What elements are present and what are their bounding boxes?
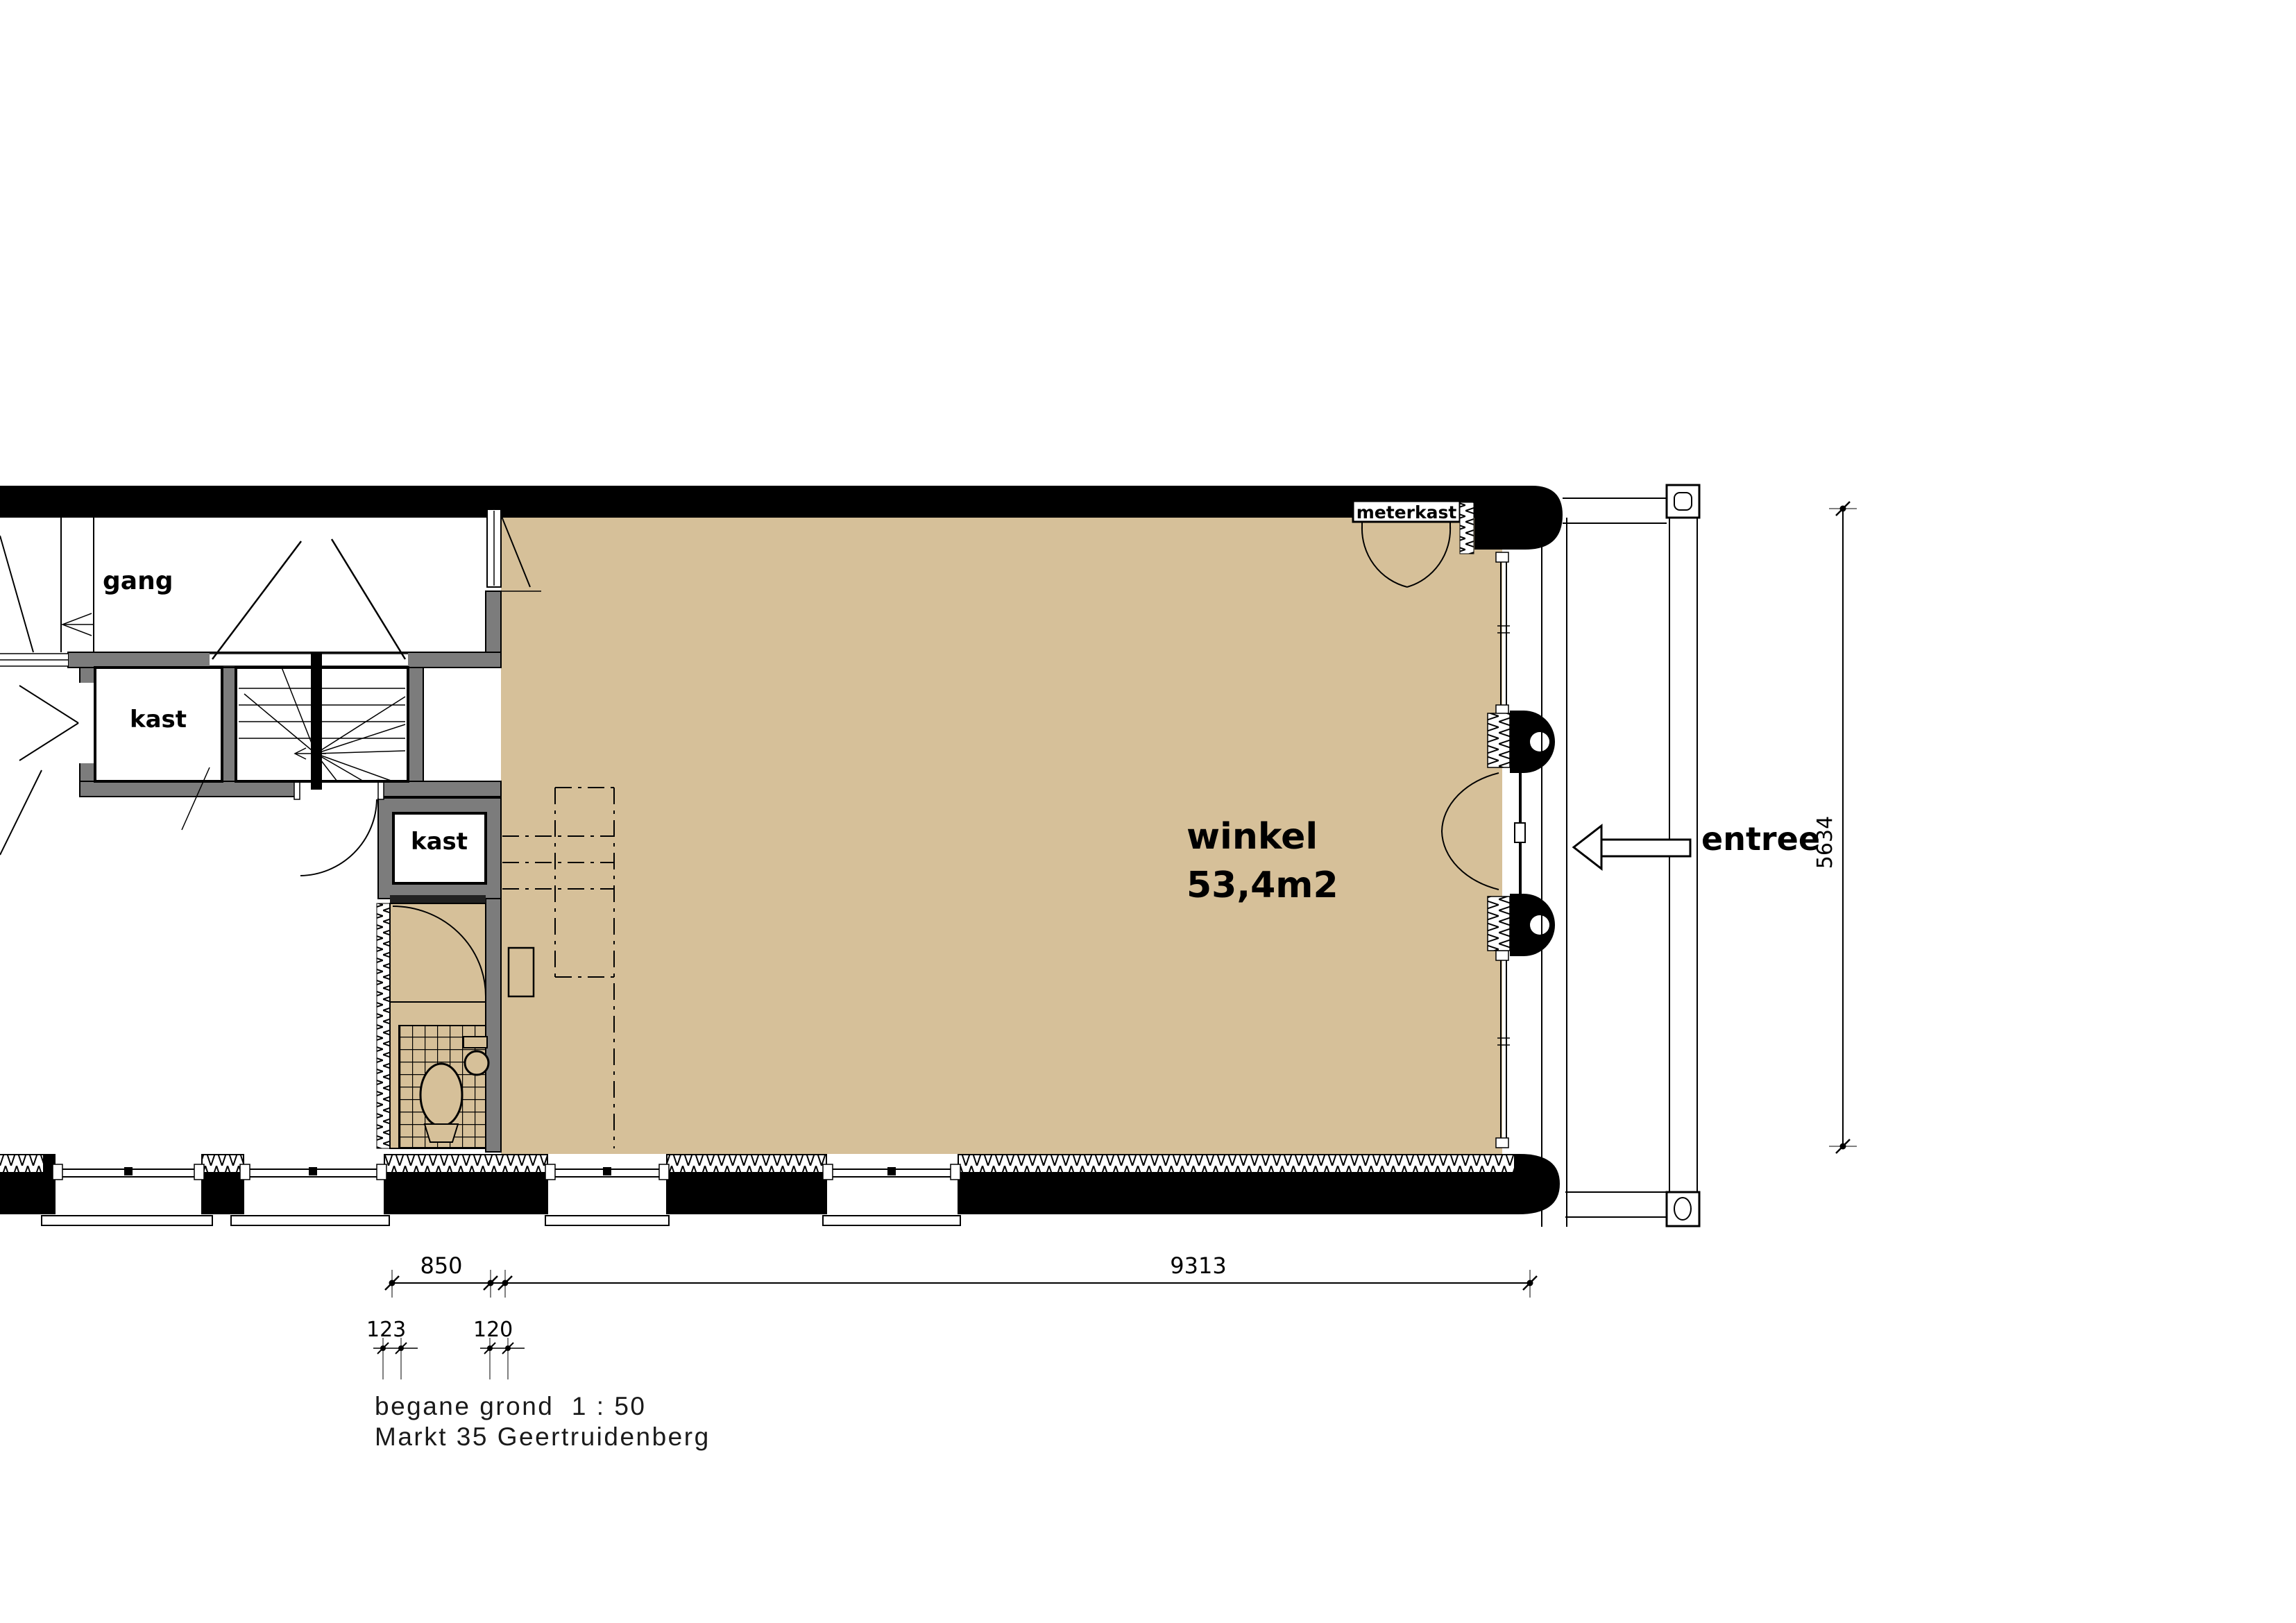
stair-newel-post	[311, 652, 322, 790]
winkel-floor	[390, 518, 1502, 1154]
toilet-fixture	[420, 1064, 462, 1142]
sink-fixture	[464, 1037, 488, 1075]
dim-850: 850	[414, 1255, 469, 1277]
gang-ramp-lines	[61, 518, 94, 652]
dim-123: 123	[366, 1320, 401, 1341]
dim-row-2	[373, 1338, 525, 1379]
room-label-gang: gang	[103, 569, 173, 594]
room-label-kast-upper: kast	[117, 708, 200, 731]
room-label-winkel: winkel	[1187, 819, 1318, 855]
stair-top-doors	[212, 539, 405, 659]
insulation-hatch-strips	[0, 1155, 1514, 1172]
window-left-of-kast	[0, 654, 68, 666]
drawing-title-scale: begane grond 1 : 50	[375, 1393, 647, 1419]
radiator	[509, 948, 534, 996]
kast-upper-door-swing	[19, 686, 78, 760]
dim-9313: 9313	[1160, 1255, 1236, 1277]
floor-plan-drawing	[0, 0, 2296, 1623]
label-entree: entree	[1701, 823, 1820, 855]
floor-plan-page: gang kast kast winkel 53,4m2 meterkast e…	[0, 0, 2296, 1623]
corridor-door-swing	[300, 799, 377, 876]
porch-frame	[1542, 498, 1697, 1227]
room-label-meterkast: meterkast	[1353, 504, 1460, 521]
room-label-winkel-area: 53,4m2	[1187, 867, 1338, 903]
dim-120: 120	[473, 1320, 508, 1341]
room-label-kast-lower: kast	[398, 830, 481, 853]
storefront-wall	[0, 1154, 1560, 1225]
window-sills	[42, 1216, 960, 1225]
drawing-title-address: Markt 35 Geertruidenberg	[375, 1424, 711, 1450]
dim-5634: 5634	[1815, 801, 1840, 884]
entree-arrow-icon	[1574, 826, 1690, 869]
